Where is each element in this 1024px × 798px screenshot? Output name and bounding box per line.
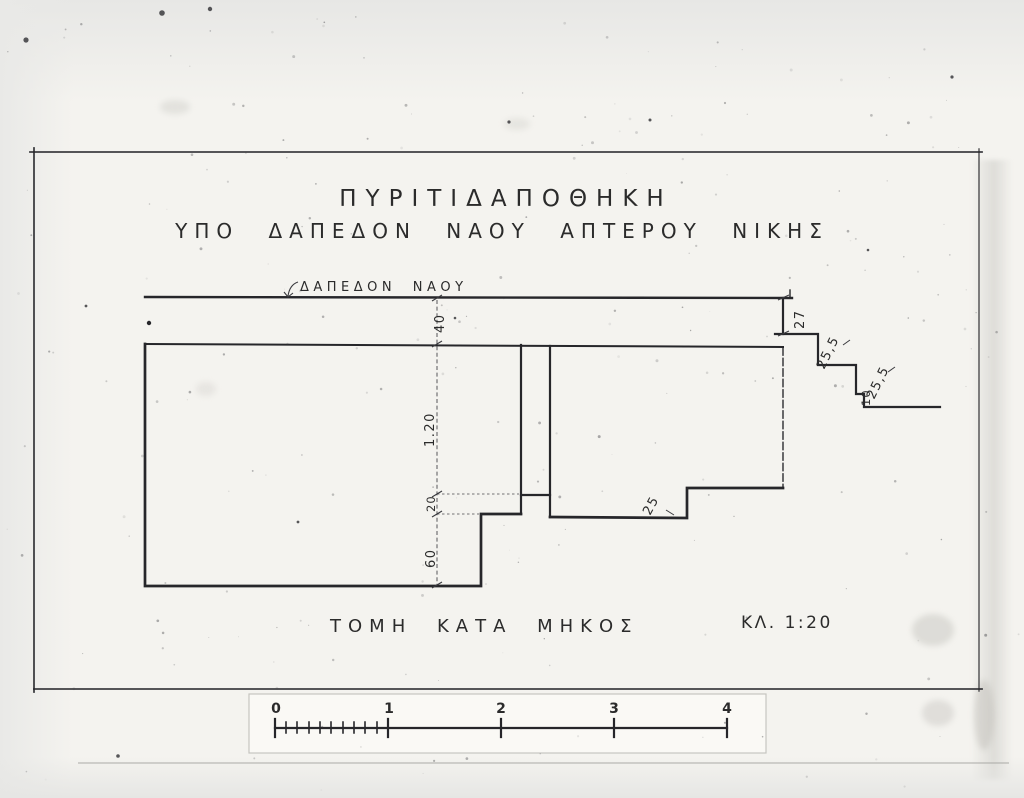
section-caption: ΤΟΜΗ ΚΑΤΑ ΜΗΚΟΣ (329, 616, 639, 637)
scale-note: ΚΛ. 1:20 (741, 613, 833, 633)
dimension-stair-tread: 10 (859, 389, 873, 406)
scanned-drawing-page: ΠΥΡΙΤΙΔΑΠΟΘΗΚΗ ΥΠΟ ΔΑΠΕΔΟΝ ΝΑΟΥ ΑΠΤΕΡΟΥ … (0, 0, 1024, 798)
scale-tick-label-3: 3 (609, 701, 619, 717)
section-outline (145, 344, 783, 586)
staircase-dimensions: 27 25,5 25,5 10 (778, 295, 895, 406)
dimension-chamber-step: 25 (640, 494, 662, 518)
scale-tick-label-1: 1 (384, 701, 394, 717)
dimension-sill-height: 20 (424, 495, 438, 512)
drawing-subtitle: ΥΠΟ ΔΑΠΕΔΟΝ ΝΑΟΥ ΑΠΤΕΡΟΥ ΝΙΚΗΣ (174, 219, 829, 243)
dimension-tick (666, 510, 674, 515)
drawing-canvas: ΠΥΡΙΤΙΔΑΠΟΘΗΚΗ ΥΠΟ ΔΑΠΕΔΟΝ ΝΑΟΥ ΑΠΤΕΡΟΥ … (0, 0, 1024, 798)
floor-line-label: ΔΑΠΕΔΟΝ ΝΑΟΥ (300, 280, 468, 295)
leader-arrow-icon (284, 282, 298, 297)
scale-tick-label-0: 0 (271, 701, 281, 717)
scale-bar: 0 1 2 3 4 (249, 694, 766, 753)
scale-tick-label-2: 2 (496, 701, 506, 717)
temple-floor-line: ΔΑΠΕΔΟΝ ΝΑΟΥ (145, 280, 792, 325)
dimension-chain: 40 1.20 20 60 (423, 295, 519, 588)
dimension-pit-depth: 60 (424, 548, 439, 568)
drawing-title: ΠΥΡΙΤΙΔΑΠΟΘΗΚΗ (339, 186, 672, 212)
dimension-stair-riser-1: 27 (793, 309, 808, 329)
scale-tick-label-4: 4 (722, 701, 732, 717)
dimension-floor-thickness: 40 (433, 313, 448, 333)
dimension-chamber-height: 1.20 (423, 412, 438, 447)
datum-dot (147, 321, 151, 325)
